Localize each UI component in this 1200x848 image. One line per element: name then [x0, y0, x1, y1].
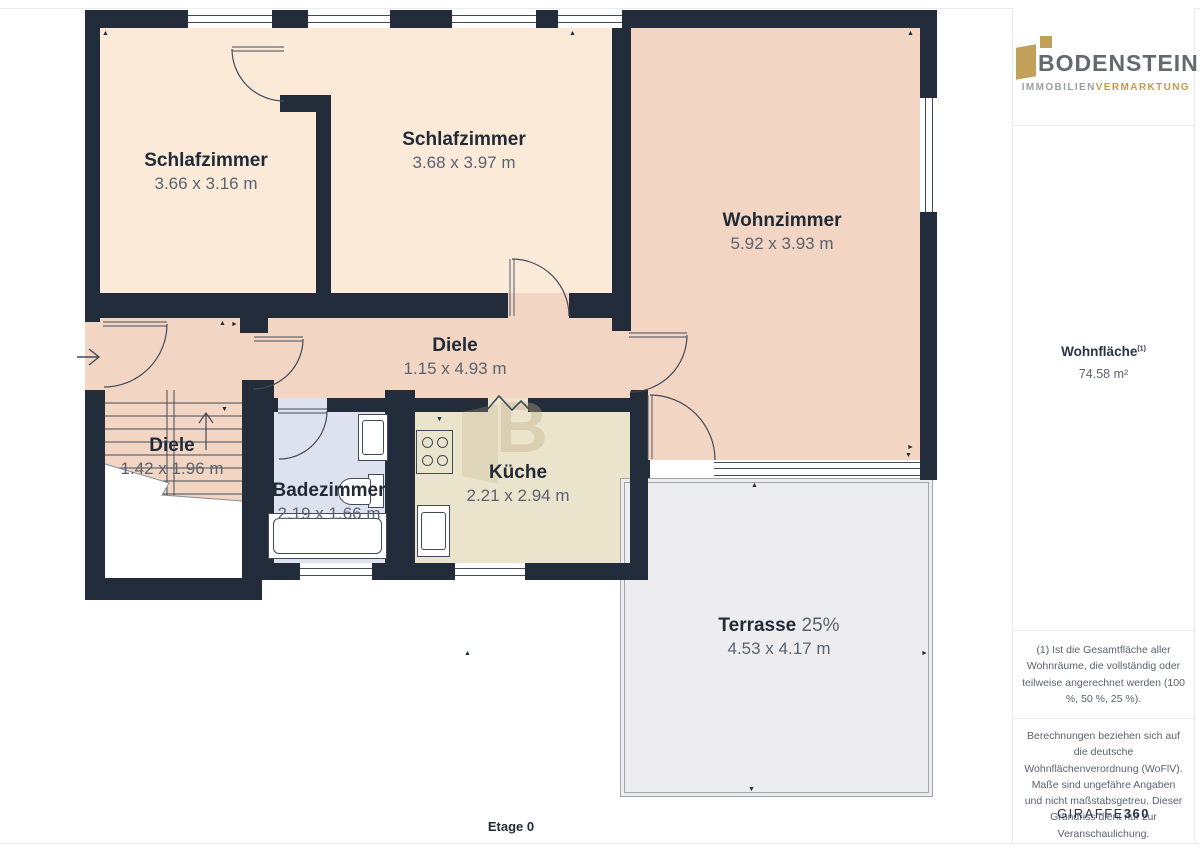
opening-badezimmer	[278, 398, 327, 412]
living-area-label-text: Wohnfläche	[1061, 344, 1137, 359]
logo-mark-icon	[1016, 44, 1036, 80]
opening-entrance	[85, 322, 100, 390]
living-area-summary: Wohnfläche(1) 74.58 m²	[1012, 344, 1195, 381]
room-label-diele-treppe: Diele 1.42 x 1.96 m	[120, 435, 223, 481]
window	[920, 98, 937, 212]
wall-left-lower	[85, 390, 105, 578]
window	[558, 10, 622, 28]
sidebar-divider	[1012, 718, 1195, 719]
room-name: Küche	[466, 462, 569, 484]
dimension-marker: ►	[907, 444, 914, 451]
floor-plan: B	[0, 0, 1012, 848]
floor-level-label: Etage 0	[411, 819, 611, 834]
dimension-marker: ▲	[219, 320, 226, 327]
doorway-bedrooms	[316, 28, 331, 95]
dimension-marker: ▲	[464, 650, 471, 657]
room-label-kueche: Küche 2.21 x 2.94 m	[466, 462, 569, 508]
room-label-badezimmer: Badezimmer 2.19 x 1.66 m	[273, 480, 386, 526]
logo-subtitle-left: IMMOBILIEN	[1022, 82, 1096, 93]
sidebar-footnote: (1) Ist die Gesamtfläche aller Wohnräume…	[1022, 642, 1185, 707]
window	[300, 563, 372, 580]
logo-subtitle: IMMOBILIENVERMARKTUNG	[1012, 82, 1190, 93]
wall-left-upper	[85, 10, 100, 322]
room-name: Schlafzimmer	[144, 150, 268, 172]
room-dims: 5.92 x 3.93 m	[723, 232, 842, 256]
room-dims: 3.66 x 3.16 m	[144, 172, 268, 196]
room-dims: 3.68 x 3.97 m	[402, 151, 526, 175]
logo-mark-square-icon	[1040, 36, 1052, 48]
room-dims: 2.21 x 2.94 m	[466, 484, 569, 508]
dimension-marker: ▼	[436, 416, 443, 423]
room-label-wohnzimmer: Wohnzimmer 5.92 x 3.93 m	[723, 210, 842, 256]
floor-plan-page: B	[0, 0, 1200, 848]
sidebar-disclaimer: Berechnungen beziehen sich auf die deuts…	[1022, 728, 1185, 842]
bathroom-sink-basin	[362, 420, 384, 455]
giraffe360-brand: GIRAFFE360	[1012, 806, 1195, 821]
terrasse-name: Terrasse	[718, 615, 796, 636]
room-dims: 1.42 x 1.96 m	[120, 457, 223, 481]
room-name: Diele	[403, 335, 506, 357]
room-area-diele	[88, 318, 650, 398]
wall-kitchen-right	[630, 390, 648, 580]
room-name: Badezimmer	[273, 480, 386, 502]
living-area-value: 74.58 m²	[1012, 367, 1195, 381]
stove-burner	[437, 455, 448, 466]
giraffe360-brand-name: GIRAFFE	[1057, 806, 1124, 821]
room-name: Wohnzimmer	[723, 210, 842, 232]
stove-burner	[437, 437, 448, 448]
sidebar-divider	[1012, 630, 1195, 631]
wall-wohnzimmer-bottom	[630, 460, 650, 478]
wall-bedroom-divider-stub	[280, 95, 331, 112]
giraffe360-watermark-letter: B	[496, 392, 548, 464]
living-area-label: Wohnfläche(1)	[1012, 344, 1195, 359]
room-name: Schlafzimmer	[402, 129, 526, 151]
room-name: Terrasse 25%	[718, 615, 839, 637]
dimension-marker: ▼	[905, 452, 912, 459]
logo-brand-text: BODENSTEIN	[1038, 50, 1199, 77]
dimension-marker: ▼	[748, 786, 755, 793]
dimension-marker: ►	[231, 321, 238, 328]
window	[452, 10, 536, 28]
logo-subtitle-right: VERMARKTUNG	[1096, 82, 1190, 93]
wall-corridor-stub	[240, 317, 268, 333]
room-dims: 2.19 x 1.66 m	[273, 502, 386, 526]
room-label-schlafzimmer-2: Schlafzimmer 3.68 x 3.97 m	[402, 129, 526, 175]
dimension-marker: ▲	[569, 30, 576, 37]
dimension-marker: ▼	[221, 406, 228, 413]
giraffe360-brand-suffix: 360	[1124, 806, 1150, 821]
wall-bedroom-divider	[316, 112, 331, 293]
room-label-schlafzimmer-1: Schlafzimmer 3.66 x 3.16 m	[144, 150, 268, 196]
window	[308, 10, 390, 28]
dimension-marker: ►	[921, 650, 928, 657]
opening-schlafzimmer-2	[508, 293, 569, 318]
wall-right	[920, 10, 937, 480]
dimension-marker: ▲	[907, 30, 914, 37]
stove-burner	[422, 437, 433, 448]
dimension-marker: ▲	[102, 30, 109, 37]
living-area-footnote-marker: (1)	[1137, 346, 1146, 353]
wall-bath-kitchen	[385, 390, 415, 563]
kitchen-sink-basin	[421, 512, 446, 550]
dimension-marker: ▲	[751, 482, 758, 489]
room-dims: 1.15 x 4.93 m	[403, 357, 506, 381]
room-dims: 4.53 x 4.17 m	[718, 637, 839, 661]
stove	[416, 430, 453, 474]
terrasse-share: 25%	[802, 615, 840, 636]
sidebar-divider	[1012, 125, 1195, 126]
window-terrasse-front	[714, 460, 920, 478]
opening-wohnzimmer	[612, 331, 631, 392]
window	[188, 10, 272, 28]
wall-wohnzimmer-left	[612, 28, 631, 331]
company-logo: BODENSTEIN IMMOBILIENVERMARKTUNG	[1012, 8, 1195, 125]
room-name: Diele	[120, 435, 223, 457]
wall-bottom-left	[85, 578, 262, 600]
room-label-terrasse: Terrasse 25% 4.53 x 4.17 m	[718, 615, 839, 661]
room-label-diele: Diele 1.15 x 4.93 m	[403, 335, 506, 381]
opening-terrasse-door	[650, 460, 714, 478]
window	[455, 563, 525, 580]
stove-burner	[422, 455, 433, 466]
